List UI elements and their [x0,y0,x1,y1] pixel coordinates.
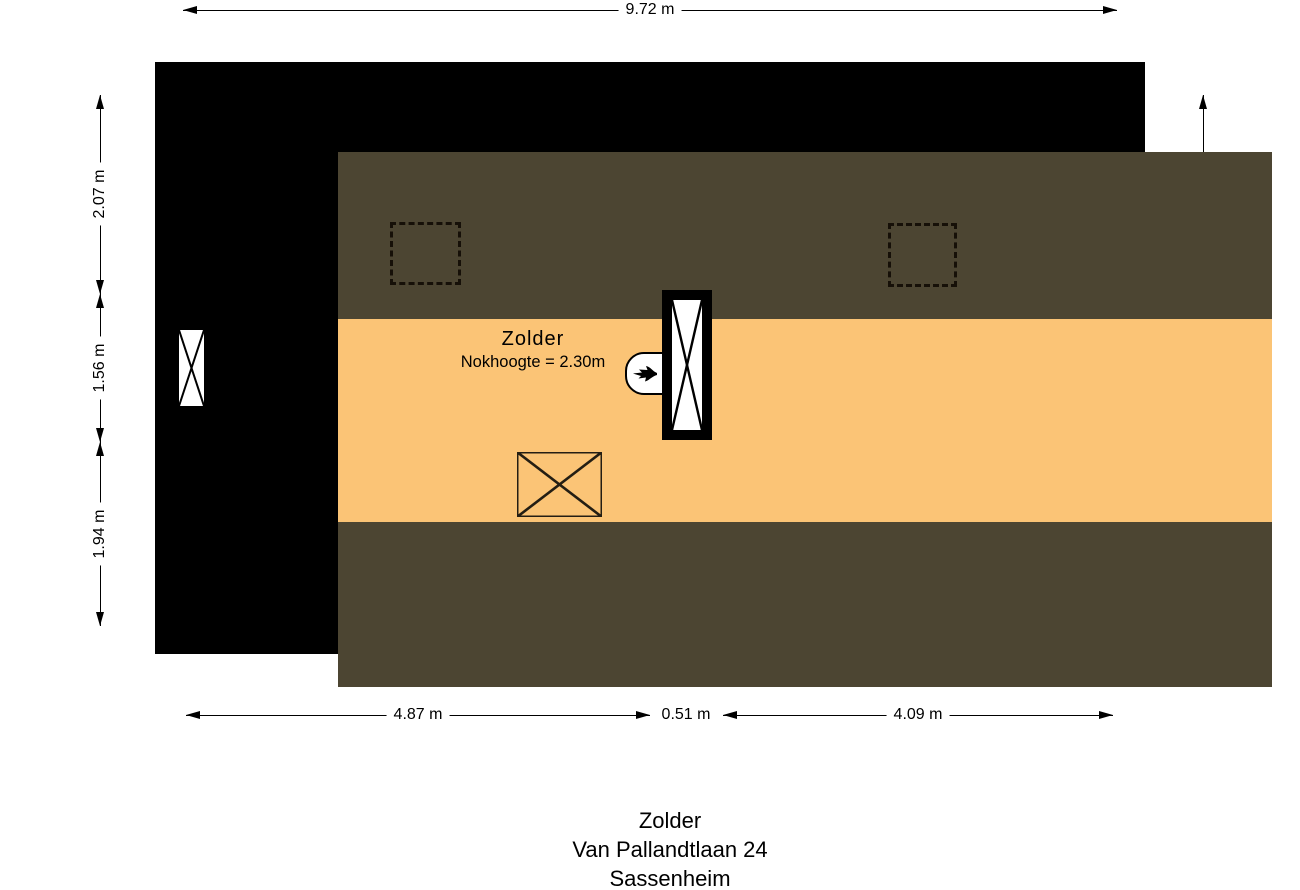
caption-city: Sassenheim [572,864,767,890]
attic-floor-area [338,152,1272,687]
arrow-down-icon [96,428,104,442]
dimension-label: 9.72 m [619,0,682,20]
arrow-right-icon [636,711,650,719]
roof-window-dashed-outline [888,223,957,287]
stair-opening-cross-icon [517,452,602,517]
caption-block: Zolder Van Pallandtlaan 24 Sassenheim [572,806,767,890]
dimension-label: 2.07 m [90,163,110,226]
arrow-left-icon [183,6,197,14]
dimension-label: 0.51 m [658,705,715,725]
room-name: Zolder [461,327,605,351]
arrow-right-icon [1103,6,1117,14]
room-label-group: Zolder Nokhoogte = 2.30m [461,327,605,373]
dimension-label: 4.09 m [887,705,950,725]
shaft-cross-icon [672,300,702,430]
arrow-up-icon [1199,95,1207,109]
dimension-label: 1.56 m [90,337,110,400]
arrow-up-icon [96,95,104,109]
sloped-roof-area-bottom [338,522,1272,687]
arrow-up-icon [96,294,104,308]
shaft-frame [662,290,712,440]
caption-address: Van Pallandtlaan 24 [572,835,767,864]
boiler-unit [625,352,664,395]
dimension-label: 4.87 m [387,705,450,725]
window-frame [155,318,213,417]
ridge-height-label: Nokhoogte = 2.30m [461,351,605,373]
arrow-left-icon [723,711,737,719]
arrow-down-icon [96,612,104,626]
flame-icon [632,365,658,383]
sloped-roof-area-top [338,152,1272,319]
roof-window-dashed-outline [390,222,461,285]
window-cross-icon [179,330,204,406]
caption-floor: Zolder [572,806,767,835]
arrow-right-icon [1099,711,1113,719]
arrow-left-icon [186,711,200,719]
stair-opening [517,452,602,517]
floorplan-page: 9.72 m 2.07 m 1.56 m 1.94 m 2.10 m 5.56 … [0,0,1300,890]
arrow-down-icon [96,280,104,294]
arrow-up-icon [96,442,104,456]
dimension-label: 1.94 m [90,503,110,566]
